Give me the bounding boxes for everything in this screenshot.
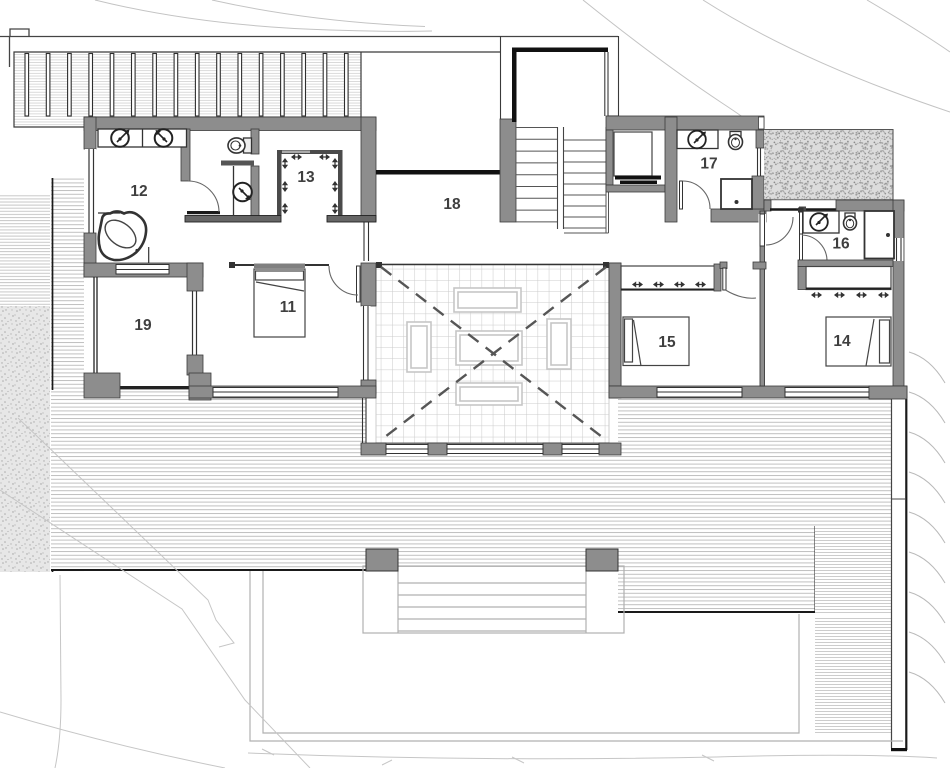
svg-text:12: 12 xyxy=(130,183,147,200)
svg-text:13: 13 xyxy=(297,169,315,186)
svg-text:15: 15 xyxy=(658,334,676,351)
svg-text:11: 11 xyxy=(280,299,297,316)
svg-text:16: 16 xyxy=(832,236,850,253)
svg-text:14: 14 xyxy=(833,333,851,350)
svg-text:19: 19 xyxy=(134,317,152,334)
svg-text:18: 18 xyxy=(443,196,461,213)
svg-text:17: 17 xyxy=(700,156,717,173)
